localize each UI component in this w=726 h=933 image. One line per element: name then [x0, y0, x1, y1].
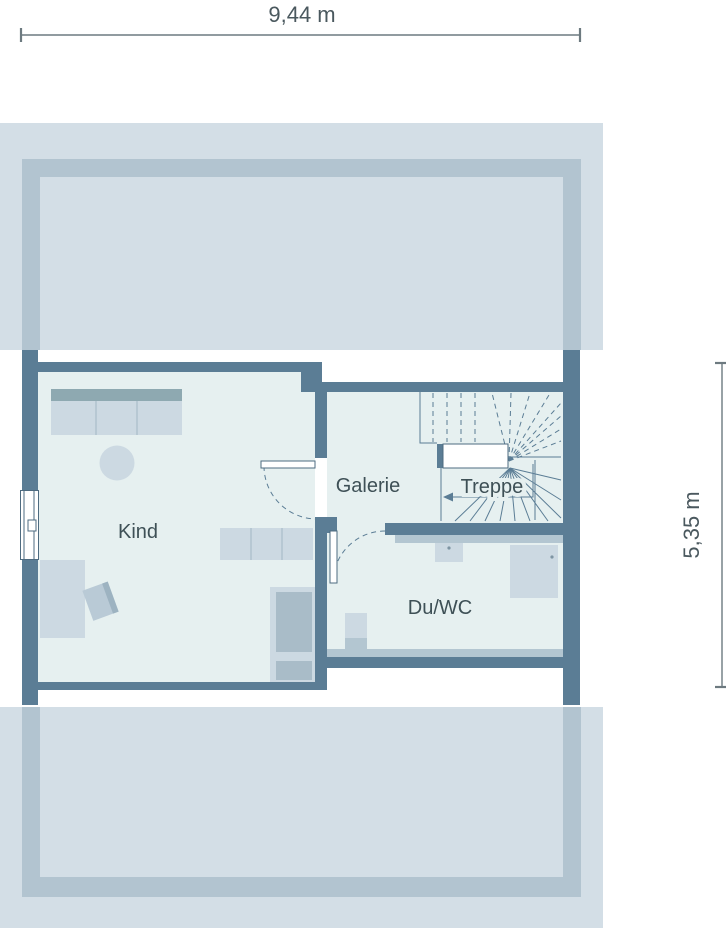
wall-right: [563, 350, 580, 705]
duwc-bottom-strip: [327, 649, 563, 657]
desk: [40, 560, 85, 638]
dimension-width: 9,44 m: [21, 2, 580, 42]
wall-bottom-duwc: [327, 657, 580, 668]
wardrobe-body: [51, 401, 182, 435]
toilet-bowl: [345, 613, 367, 638]
duwc-room-label: Du/WC: [408, 597, 472, 619]
ghost-outline-top: [22, 159, 581, 177]
wall-top-stairs: [322, 382, 563, 392]
duwc-vanity-strip: [395, 535, 563, 543]
washbasin: [435, 542, 463, 562]
bed-pillow: [276, 661, 312, 680]
round-rug: [100, 446, 135, 481]
bed-mattress: [276, 592, 312, 652]
stair-landing: [443, 444, 508, 468]
depth-dimension-label: 5,35 m: [679, 491, 704, 558]
width-dimension-label: 9,44 m: [268, 2, 335, 27]
wall-duwc-top: [385, 523, 563, 535]
washbasin-drain: [447, 546, 450, 549]
sideboard: [220, 528, 313, 560]
toilet-tank: [345, 638, 367, 650]
floor-plan-page: Kind Galerie Treppe Du/WC 9,44 m 5,35 m: [0, 0, 726, 933]
ghost-outline-top-right: [563, 177, 581, 350]
wall-top-junction: [301, 362, 322, 392]
wall-bottom-kind: [38, 682, 323, 690]
shower-drain: [550, 555, 553, 558]
ghost-outline-bottom: [22, 877, 581, 897]
wardrobe-top-strip: [51, 389, 182, 401]
wall-top-kind: [38, 362, 303, 372]
ghost-outline-top-left: [22, 159, 40, 350]
stair-newel-bar: [437, 444, 443, 468]
floor-plan-drawing: Kind Galerie Treppe Du/WC 9,44 m 5,35 m: [0, 0, 726, 933]
window-handle: [28, 520, 36, 531]
ghost-outline-bottom-right: [563, 707, 581, 897]
dimension-depth: 5,35 m: [679, 363, 726, 687]
upper-roof-band: [0, 123, 603, 350]
wall-divider-upper: [315, 392, 327, 458]
door-leaf: [261, 461, 315, 468]
window-left-wall: [20, 490, 39, 560]
treppe-room-label: Treppe: [461, 476, 524, 498]
door-leaf: [330, 531, 337, 583]
kind-room-label: Kind: [118, 521, 158, 543]
galerie-room-label: Galerie: [336, 475, 400, 497]
wall-divider-lower: [315, 517, 327, 690]
shower: [510, 545, 558, 598]
ghost-outline-bottom-left: [22, 707, 40, 897]
